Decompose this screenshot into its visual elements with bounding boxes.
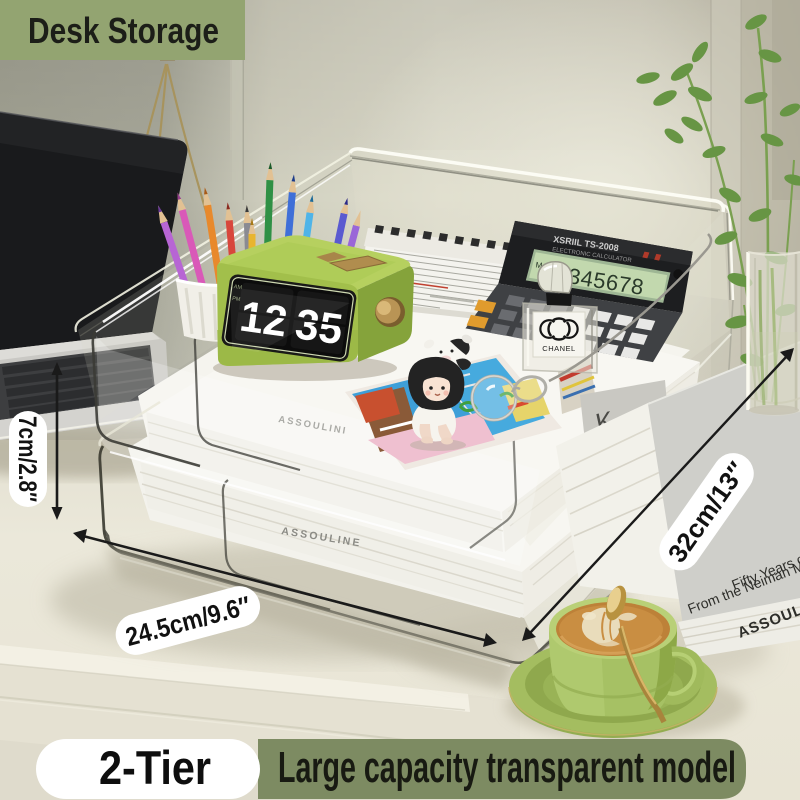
svg-text:2-Tier: 2-Tier xyxy=(99,741,211,794)
svg-text:Desk Storage: Desk Storage xyxy=(28,10,219,51)
svg-text:Large capacity transparent mod: Large capacity transparent model xyxy=(278,743,736,792)
svg-text:7cm/2.8″: 7cm/2.8″ xyxy=(13,416,41,502)
svg-text:CHANEL: CHANEL xyxy=(542,344,575,353)
